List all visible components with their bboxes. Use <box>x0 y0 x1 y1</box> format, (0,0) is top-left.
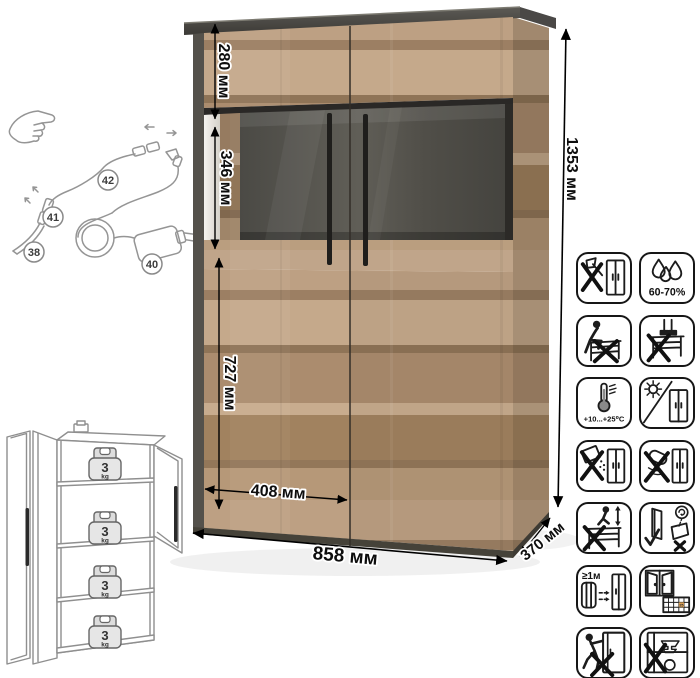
panel-tilted-icon <box>672 523 689 539</box>
door-handle-right <box>363 114 368 266</box>
cabinet-body <box>184 7 556 558</box>
water-drops-icon <box>653 260 682 282</box>
cabinet-glass-section <box>204 104 513 240</box>
weight-icon: 3 kg <box>89 512 121 545</box>
cabinet-photo: 280 мм 346 мм 727 мм 408 мм 858 мм 370 м… <box>140 0 600 615</box>
care-icon-no-dragging <box>576 627 632 678</box>
part-label-cable: 42 <box>102 175 114 187</box>
calendar-icon <box>663 597 689 612</box>
svg-text:kg: kg <box>101 642 109 649</box>
prohibition-x-icon <box>585 527 604 549</box>
care-icon-no-direct-sun <box>639 377 695 429</box>
up-down-arrow-icon <box>615 506 621 526</box>
svg-text:kg: kg <box>101 538 109 545</box>
prohibition-x-icon <box>646 453 668 481</box>
radiator-icon <box>582 583 596 608</box>
svg-text:kg: kg <box>101 474 109 481</box>
shelf-load-diagram: 3 kg 3 kg 3 kg 3 kg <box>2 420 190 678</box>
person-icon <box>598 506 609 524</box>
part-label-connector: 41 <box>47 212 59 224</box>
prohibition-x-icon <box>582 452 602 479</box>
kettlebell-icon <box>665 660 675 670</box>
dim-label-overall-height: 1353 мм <box>563 137 580 201</box>
dim-arrow-1353 <box>558 29 566 507</box>
product-info-sheet: 42 41 38 40 <box>0 0 700 678</box>
door-handle-left <box>327 113 332 265</box>
window-icon <box>646 571 674 596</box>
distance-value: ≥1м <box>582 571 601 582</box>
weight-icon: 3 kg <box>89 616 121 649</box>
legs-icon <box>661 320 677 335</box>
dim-label-lower-section: 727 мм <box>221 356 238 411</box>
care-icon-no-heavy-items <box>639 627 695 678</box>
prohibition-x-icon <box>646 645 665 672</box>
care-icon-no-scrubbing <box>639 440 695 492</box>
weight-icon: 3 kg <box>89 448 121 481</box>
care-icon-heater-distance: ≥1м <box>576 565 632 617</box>
thermometer-icon <box>598 384 616 412</box>
door-handle-icon <box>26 508 30 566</box>
care-icon-humidity: 60-70% <box>639 252 695 304</box>
care-icon-no-sitting <box>576 315 632 367</box>
sun-icon <box>645 381 662 398</box>
magnifier-detail-icon <box>676 506 688 518</box>
care-icon-temperature: +10...+25⁰C <box>576 377 632 429</box>
prohibition-x-icon <box>675 542 684 550</box>
arrow-down-icon <box>33 187 38 192</box>
humidity-value: 60-70% <box>649 287 686 299</box>
part-label-led-strip: 38 <box>28 247 40 259</box>
weight-icon: 3 kg <box>89 566 121 599</box>
care-icon-no-abrasives <box>576 440 632 492</box>
care-icon-carry-upright <box>639 502 695 554</box>
hand-icon <box>9 111 54 143</box>
svg-text:kg: kg <box>101 592 109 599</box>
dim-label-top-section: 280 мм <box>215 44 232 99</box>
door-handle-icon <box>174 486 178 542</box>
care-icon-no-standing <box>639 315 695 367</box>
care-icon-no-sharp-tools <box>576 252 632 304</box>
care-icon-ventilate: 25 <box>639 565 695 617</box>
cabinet-top-doors <box>204 17 513 108</box>
temperature-value: +10...+25⁰C <box>584 414 625 423</box>
care-icon-no-jumping <box>576 502 632 554</box>
dim-label-glass-section: 346 мм <box>217 151 234 206</box>
